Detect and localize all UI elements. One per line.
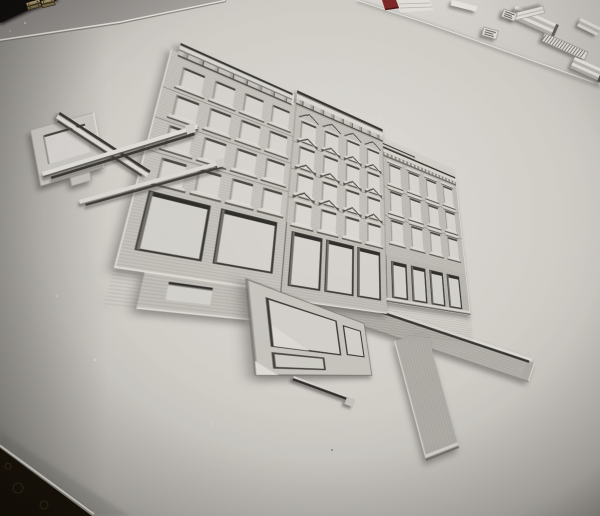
storefront-opening (325, 240, 353, 295)
storefront-opening (392, 262, 408, 300)
storefront-opening (412, 266, 427, 302)
storefront-opening (358, 248, 380, 300)
storefront-opening (289, 232, 322, 290)
storefront-opening (430, 271, 445, 306)
photo-architectural-paper-model (0, 0, 600, 516)
